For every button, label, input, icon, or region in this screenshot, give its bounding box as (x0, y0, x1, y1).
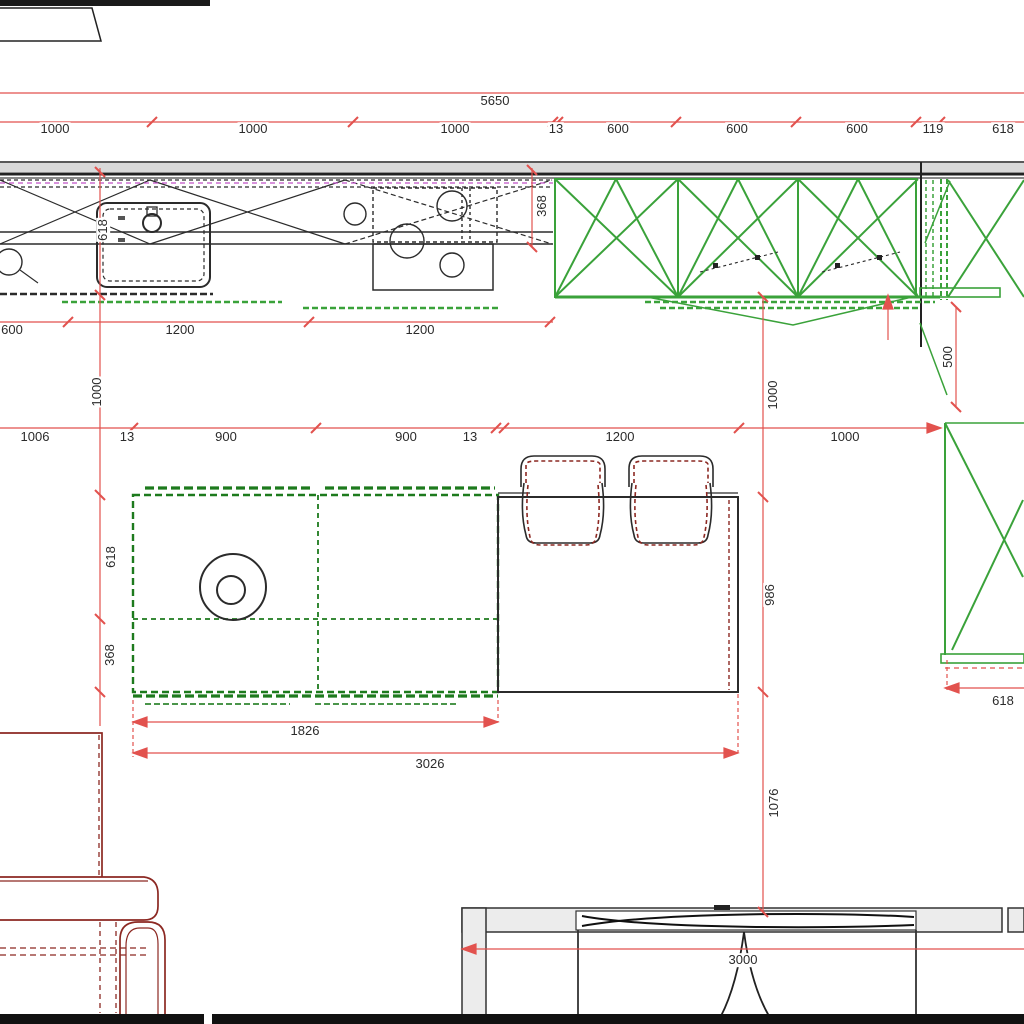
dim-label-left-clearance: 1000 (90, 377, 104, 408)
tv-mount (714, 905, 730, 910)
dim-label: 1200 (405, 323, 436, 337)
dim-label-island-width: 1826 (290, 724, 321, 738)
wall-band (0, 162, 1024, 178)
dim-label-tall-depth: 500 (941, 345, 955, 369)
dim-label-counter-depth: 368 (535, 194, 549, 218)
dim-label-overall: 5650 (480, 94, 511, 108)
dim-label: 13 (462, 430, 478, 444)
sink-annotation-marks (118, 238, 125, 242)
floor-edge-dashes (62, 302, 935, 308)
burner-icon (440, 253, 464, 277)
dim-label: 119 (922, 122, 945, 136)
tv-stand-leg (744, 932, 769, 1016)
dim-label: 1000 (440, 122, 471, 136)
dim-label-walkway: 1076 (767, 788, 781, 819)
dim-label: 900 (214, 430, 238, 444)
tall-units-right (920, 179, 1024, 663)
dim-label-island-total: 3026 (415, 757, 446, 771)
appliance-left-edge (0, 249, 38, 283)
floor-plan-canvas: 5650 1000 1000 1000 13 600 600 600 119 6… (0, 0, 1024, 1024)
dim-label: 1200 (605, 430, 636, 444)
floor-plan-drawing (0, 0, 1024, 1024)
burner-icon (390, 224, 424, 258)
tv-stand-leg (721, 932, 744, 1016)
dim-label: 13 (548, 122, 564, 136)
dim-label: 600 (725, 122, 749, 136)
island-sink (200, 554, 266, 620)
sofa (0, 733, 165, 1016)
dim-label-right-clearance: 1000 (766, 380, 780, 411)
dim-label: 618 (991, 122, 1015, 136)
dim-label: 1000 (40, 122, 71, 136)
chair (629, 456, 713, 545)
dim-label-island-bottom: 368 (103, 643, 117, 667)
dim-label: 1000 (830, 430, 861, 444)
dim-label-left-depth: 618 (96, 218, 110, 242)
dim-label: 900 (394, 430, 418, 444)
dim-label: 600 (606, 122, 630, 136)
dim-label: 1000 (238, 122, 269, 136)
burner-icon (344, 203, 366, 225)
dim-label-island-top: 618 (104, 545, 118, 569)
dim-label-tv-width: 3000 (728, 953, 759, 967)
dim-label: 600 (0, 323, 24, 337)
kitchen-island (133, 488, 498, 704)
sink-cabinet (97, 203, 210, 287)
faucet-icon (143, 214, 161, 232)
wall-bottom (0, 1014, 1024, 1024)
dim-label-table-zone: 986 (763, 583, 777, 607)
dim-label: 13 (119, 430, 135, 444)
door-handle-marks (700, 252, 900, 272)
sink-annotation-marks (118, 216, 125, 220)
chair (521, 456, 605, 545)
dim-label: 1006 (20, 430, 51, 444)
wall-top-left-stub (0, 0, 210, 41)
dim-label-right-width: 618 (991, 694, 1015, 708)
dim-label: 1200 (165, 323, 196, 337)
dimension-lines (0, 93, 1024, 954)
dim-label: 600 (845, 122, 869, 136)
dining-table (498, 493, 738, 692)
hob-cabinet (344, 188, 497, 290)
